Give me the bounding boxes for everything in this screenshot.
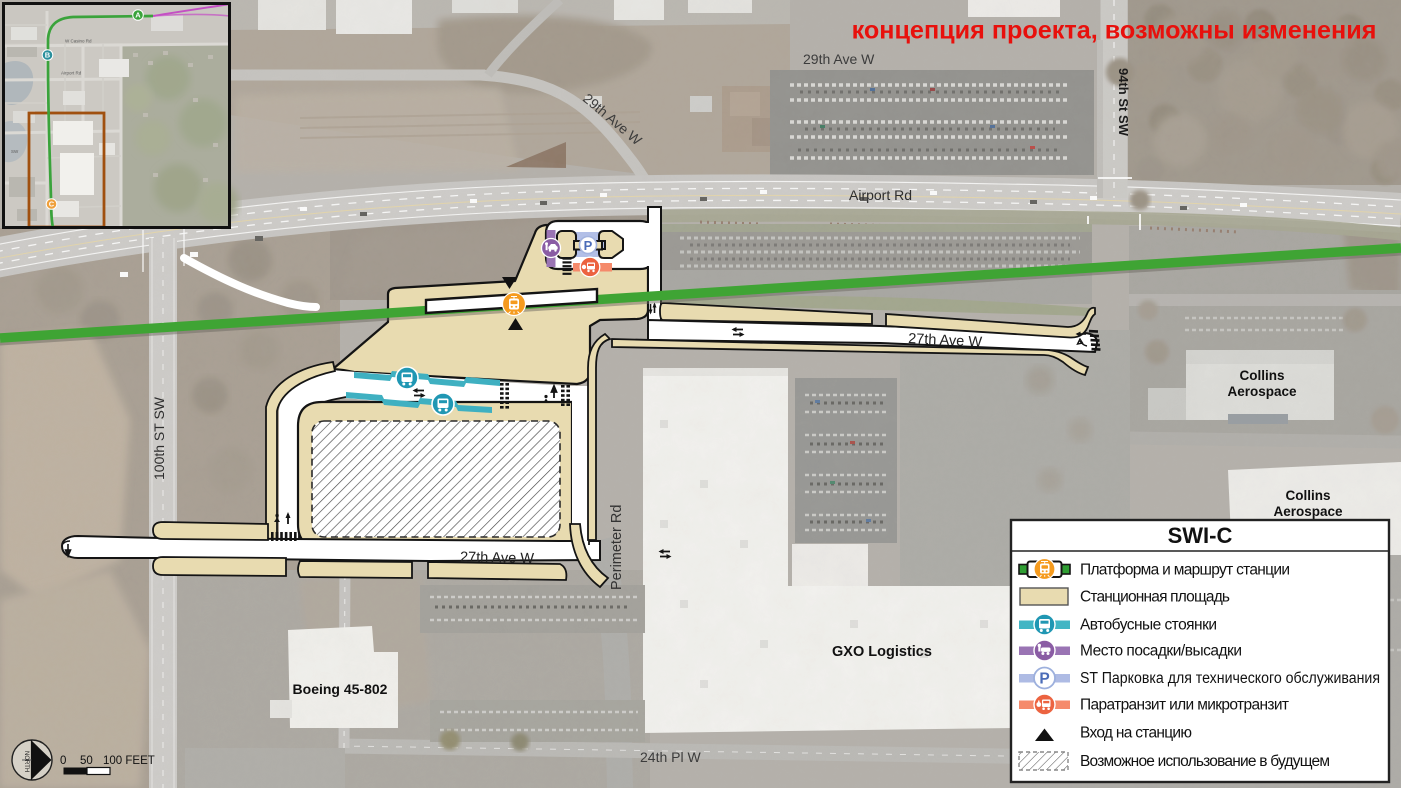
svg-text:NORTH: NORTH: [23, 751, 29, 772]
svg-text:Airport Rd: Airport Rd: [61, 71, 82, 76]
svg-text:Станционная площадь: Станционная площадь: [1080, 589, 1230, 606]
svg-text:Автобусные стоянки: Автобусные стоянки: [1080, 617, 1217, 634]
svg-text:B: B: [45, 51, 51, 60]
svg-text:50: 50: [80, 755, 93, 767]
svg-text:SW: SW: [11, 149, 19, 154]
svg-text:Collins: Collins: [1239, 368, 1284, 383]
svg-text:C: C: [49, 200, 55, 209]
svg-text:Вход на станцию: Вход на станцию: [1080, 725, 1192, 742]
svg-text:Место посадки/высадки: Место посадки/высадки: [1080, 643, 1242, 660]
svg-text:A: A: [135, 11, 141, 20]
svg-text:29th Ave W: 29th Ave W: [803, 51, 875, 67]
svg-text:Collins: Collins: [1285, 488, 1330, 503]
svg-text:94th St SW: 94th St SW: [1116, 68, 1131, 137]
svg-text:концепция проекта, возможны из: концепция проекта, возможны изменения: [852, 17, 1377, 45]
svg-text:GXO Logistics: GXO Logistics: [832, 644, 932, 660]
svg-text:Aerospace: Aerospace: [1273, 504, 1343, 519]
svg-text:Aerospace: Aerospace: [1227, 384, 1297, 399]
svg-text:Perimeter Rd: Perimeter Rd: [609, 505, 625, 590]
svg-text:Airport Rd: Airport Rd: [849, 187, 912, 203]
svg-text:0: 0: [60, 755, 66, 767]
svg-text:Возможное использование в буду: Возможное использование в будущем: [1080, 753, 1330, 770]
svg-text:100 FEET: 100 FEET: [103, 755, 155, 767]
svg-text:Платформа и маршрут станции: Платформа и маршрут станции: [1080, 562, 1290, 579]
svg-text:P: P: [584, 238, 593, 253]
svg-text:27th Ave W: 27th Ave W: [460, 550, 535, 568]
svg-text:ST Парковка для технического о: ST Парковка для технического обслуживани…: [1080, 670, 1380, 687]
svg-text:24th Pl W: 24th Pl W: [640, 749, 701, 765]
svg-text:100th ST SW: 100th ST SW: [151, 396, 167, 480]
svg-text:P: P: [1039, 671, 1049, 688]
svg-text:W Casino Rd: W Casino Rd: [65, 39, 92, 44]
svg-text:Паратранзит или микротранзит: Паратранзит или микротранзит: [1080, 697, 1289, 714]
svg-text:Boeing 45-802: Boeing 45-802: [293, 681, 388, 697]
svg-text:SWI-C: SWI-C: [1168, 523, 1233, 548]
